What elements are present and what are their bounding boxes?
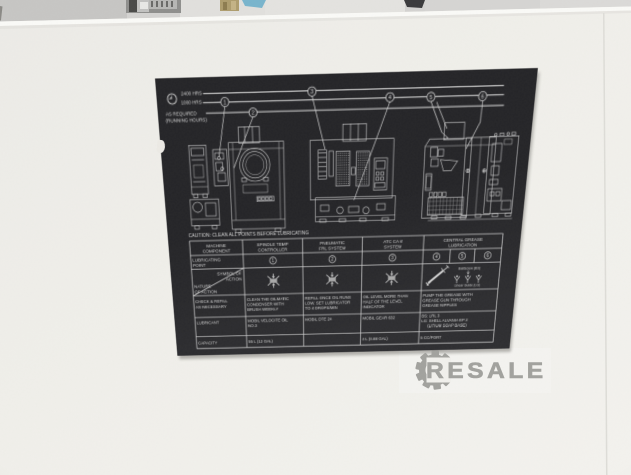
svg-text:RESALE: RESALE: [426, 358, 547, 382]
